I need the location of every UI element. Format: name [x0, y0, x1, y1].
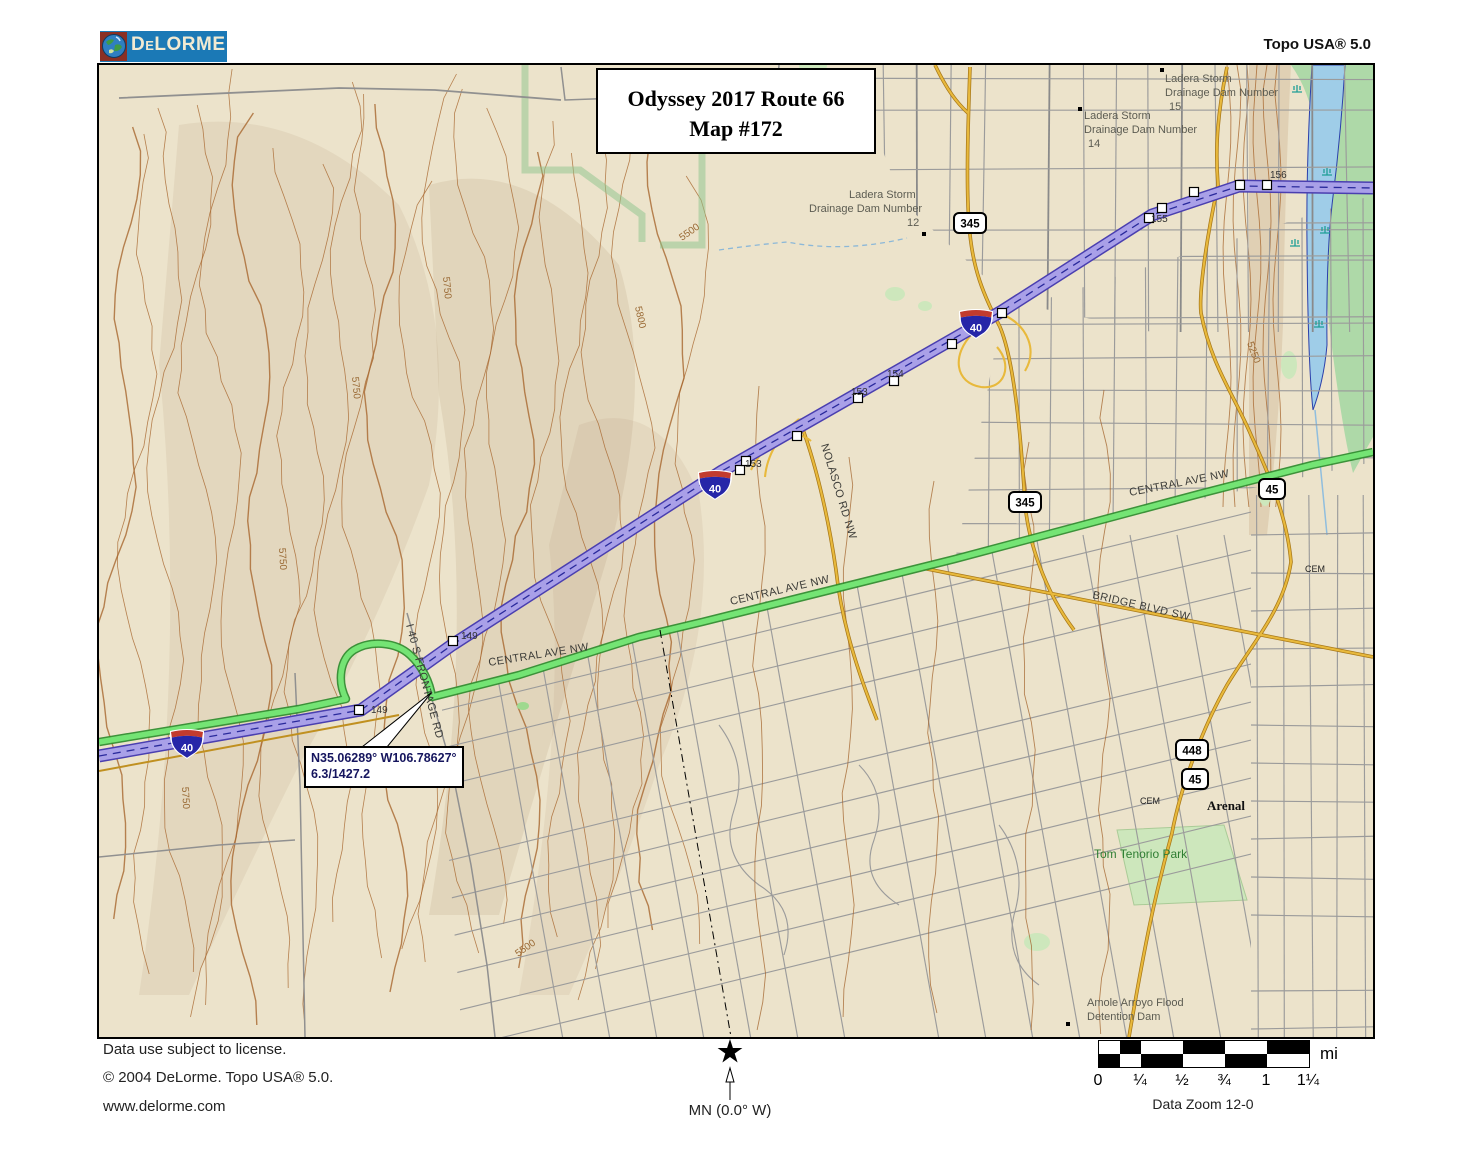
mile-marker-label: 154	[887, 369, 904, 380]
map-label: Tom Tenorio Park	[1094, 847, 1188, 861]
scale-tick: ¼	[1133, 1072, 1146, 1090]
interstate-shield: 40	[698, 470, 732, 500]
scale-tick: 1	[1262, 1072, 1271, 1090]
map-label: Ladera Storm	[849, 189, 916, 201]
exit-marker	[998, 309, 1007, 318]
website-text: www.delorme.com	[103, 1098, 226, 1115]
map-label: 12	[907, 217, 919, 229]
exit-marker	[793, 432, 802, 441]
scale-bar-top-row	[1099, 1041, 1309, 1054]
state-route-shield: 448	[1176, 740, 1208, 760]
exit-marker	[948, 340, 957, 349]
map-label: Drainage Dam Number	[1165, 87, 1278, 99]
map-canvas[interactable]: Ladera StormDrainage Dam Number15Ladera …	[99, 65, 1373, 1037]
mile-marker-label: 155	[1151, 214, 1168, 225]
svg-text:345: 345	[960, 219, 980, 231]
callout-coordinates: N35.06289° W106.78627°	[311, 750, 457, 766]
map-label: Ladera Storm	[1084, 110, 1151, 122]
svg-text:40: 40	[970, 323, 982, 335]
exit-marker	[1263, 181, 1272, 190]
north-arrow-icon	[726, 1068, 734, 1082]
map-label: NOLASCO RD NW	[818, 442, 859, 541]
map-label: CEM	[1140, 796, 1160, 806]
marsh-icon	[1290, 239, 1300, 246]
point-marker	[1160, 68, 1164, 72]
point-marker	[1078, 107, 1082, 111]
mile-marker-label: 149	[371, 705, 388, 716]
license-text: Data use subject to license.	[103, 1041, 286, 1058]
star-icon	[718, 1039, 743, 1063]
page: DeLORME Topo USA® 5.0	[0, 0, 1463, 1162]
svg-text:45: 45	[1266, 485, 1279, 497]
map-title-line2: Map #172	[598, 114, 874, 144]
arroyo-channels	[753, 386, 1111, 1034]
mn-reference-line	[660, 630, 731, 1037]
exit-marker	[736, 466, 745, 475]
map-label: Arenal	[1207, 798, 1245, 813]
scale-tick: ¾	[1217, 1072, 1230, 1090]
mile-marker-label: 153	[745, 459, 762, 470]
exit-marker	[1190, 188, 1199, 197]
map-title-box: Odyssey 2017 Route 66 Map #172	[596, 68, 876, 154]
exit-marker	[449, 637, 458, 646]
map-label: 15	[1169, 101, 1181, 113]
exit-marker	[1236, 181, 1245, 190]
state-route-shield: 45	[1259, 479, 1285, 499]
mile-marker-label: 149	[461, 631, 478, 642]
delorme-logo: DeLORME	[100, 31, 227, 62]
map-label: CEM	[1305, 564, 1325, 574]
state-route-shield: 345	[1009, 492, 1041, 512]
map-label: CENTRAL AVE NW	[1128, 468, 1230, 499]
point-marker	[1066, 1022, 1070, 1026]
dam-point-markers	[922, 68, 1164, 1026]
map-title-line1: Odyssey 2017 Route 66	[598, 84, 874, 114]
map-label: 5750	[276, 548, 288, 571]
scale-tick: 0	[1094, 1072, 1103, 1090]
mile-marker-label: 156	[1270, 170, 1287, 181]
map-label: Ladera Storm	[1165, 73, 1232, 85]
point-marker	[922, 232, 926, 236]
map-label: 5750	[179, 787, 191, 810]
exit-marker	[355, 706, 364, 715]
product-title: Topo USA® 5.0	[1264, 36, 1371, 53]
scale-units-label: mi	[1320, 1044, 1338, 1064]
map-label: Amole Arroyo Flood	[1087, 997, 1184, 1009]
data-zoom-label: Data Zoom 12-0	[1098, 1096, 1308, 1112]
svg-text:345: 345	[1015, 498, 1035, 510]
exit-marker	[1158, 204, 1167, 213]
map-frame: Ladera StormDrainage Dam Number15Ladera …	[97, 63, 1375, 1039]
map-label: 5800	[632, 305, 647, 329]
scale-bar	[1098, 1040, 1310, 1068]
scale-tick: 1¼	[1297, 1072, 1319, 1090]
svg-text:40: 40	[181, 743, 193, 755]
marsh-icon	[1292, 85, 1302, 92]
arroyo-stream	[719, 238, 907, 250]
scale-tick: ½	[1175, 1072, 1188, 1090]
coordinate-callout: N35.06289° W106.78627° 6.3/1427.2	[304, 746, 464, 788]
callout-distance-elevation: 6.3/1427.2	[311, 766, 457, 782]
scale-bar-bottom-row	[1099, 1054, 1309, 1067]
north-indicator	[700, 1036, 760, 1106]
map-label: 5750	[349, 376, 362, 400]
mn-declination-label: MN (0.0° W)	[660, 1102, 800, 1119]
svg-text:45: 45	[1189, 775, 1202, 787]
svg-text:40: 40	[709, 484, 721, 496]
mile-marker-label: 153	[851, 387, 868, 398]
map-label: Drainage Dam Number	[809, 203, 922, 215]
map-label: 14	[1088, 138, 1100, 150]
copyright-text: © 2004 DeLorme. Topo USA® 5.0.	[103, 1069, 333, 1086]
globe-icon	[101, 33, 128, 60]
svg-text:448: 448	[1182, 746, 1202, 758]
state-route-shield: 45	[1182, 769, 1208, 789]
state-route-shield: 345	[954, 213, 986, 233]
map-label: Detention Dam	[1087, 1011, 1160, 1023]
logo-text: DeLORME	[131, 34, 226, 56]
map-label: 5750	[440, 276, 453, 300]
map-label: Drainage Dam Number	[1084, 124, 1197, 136]
scale-tick-labels: 0¼½¾11¼	[1098, 1072, 1308, 1092]
